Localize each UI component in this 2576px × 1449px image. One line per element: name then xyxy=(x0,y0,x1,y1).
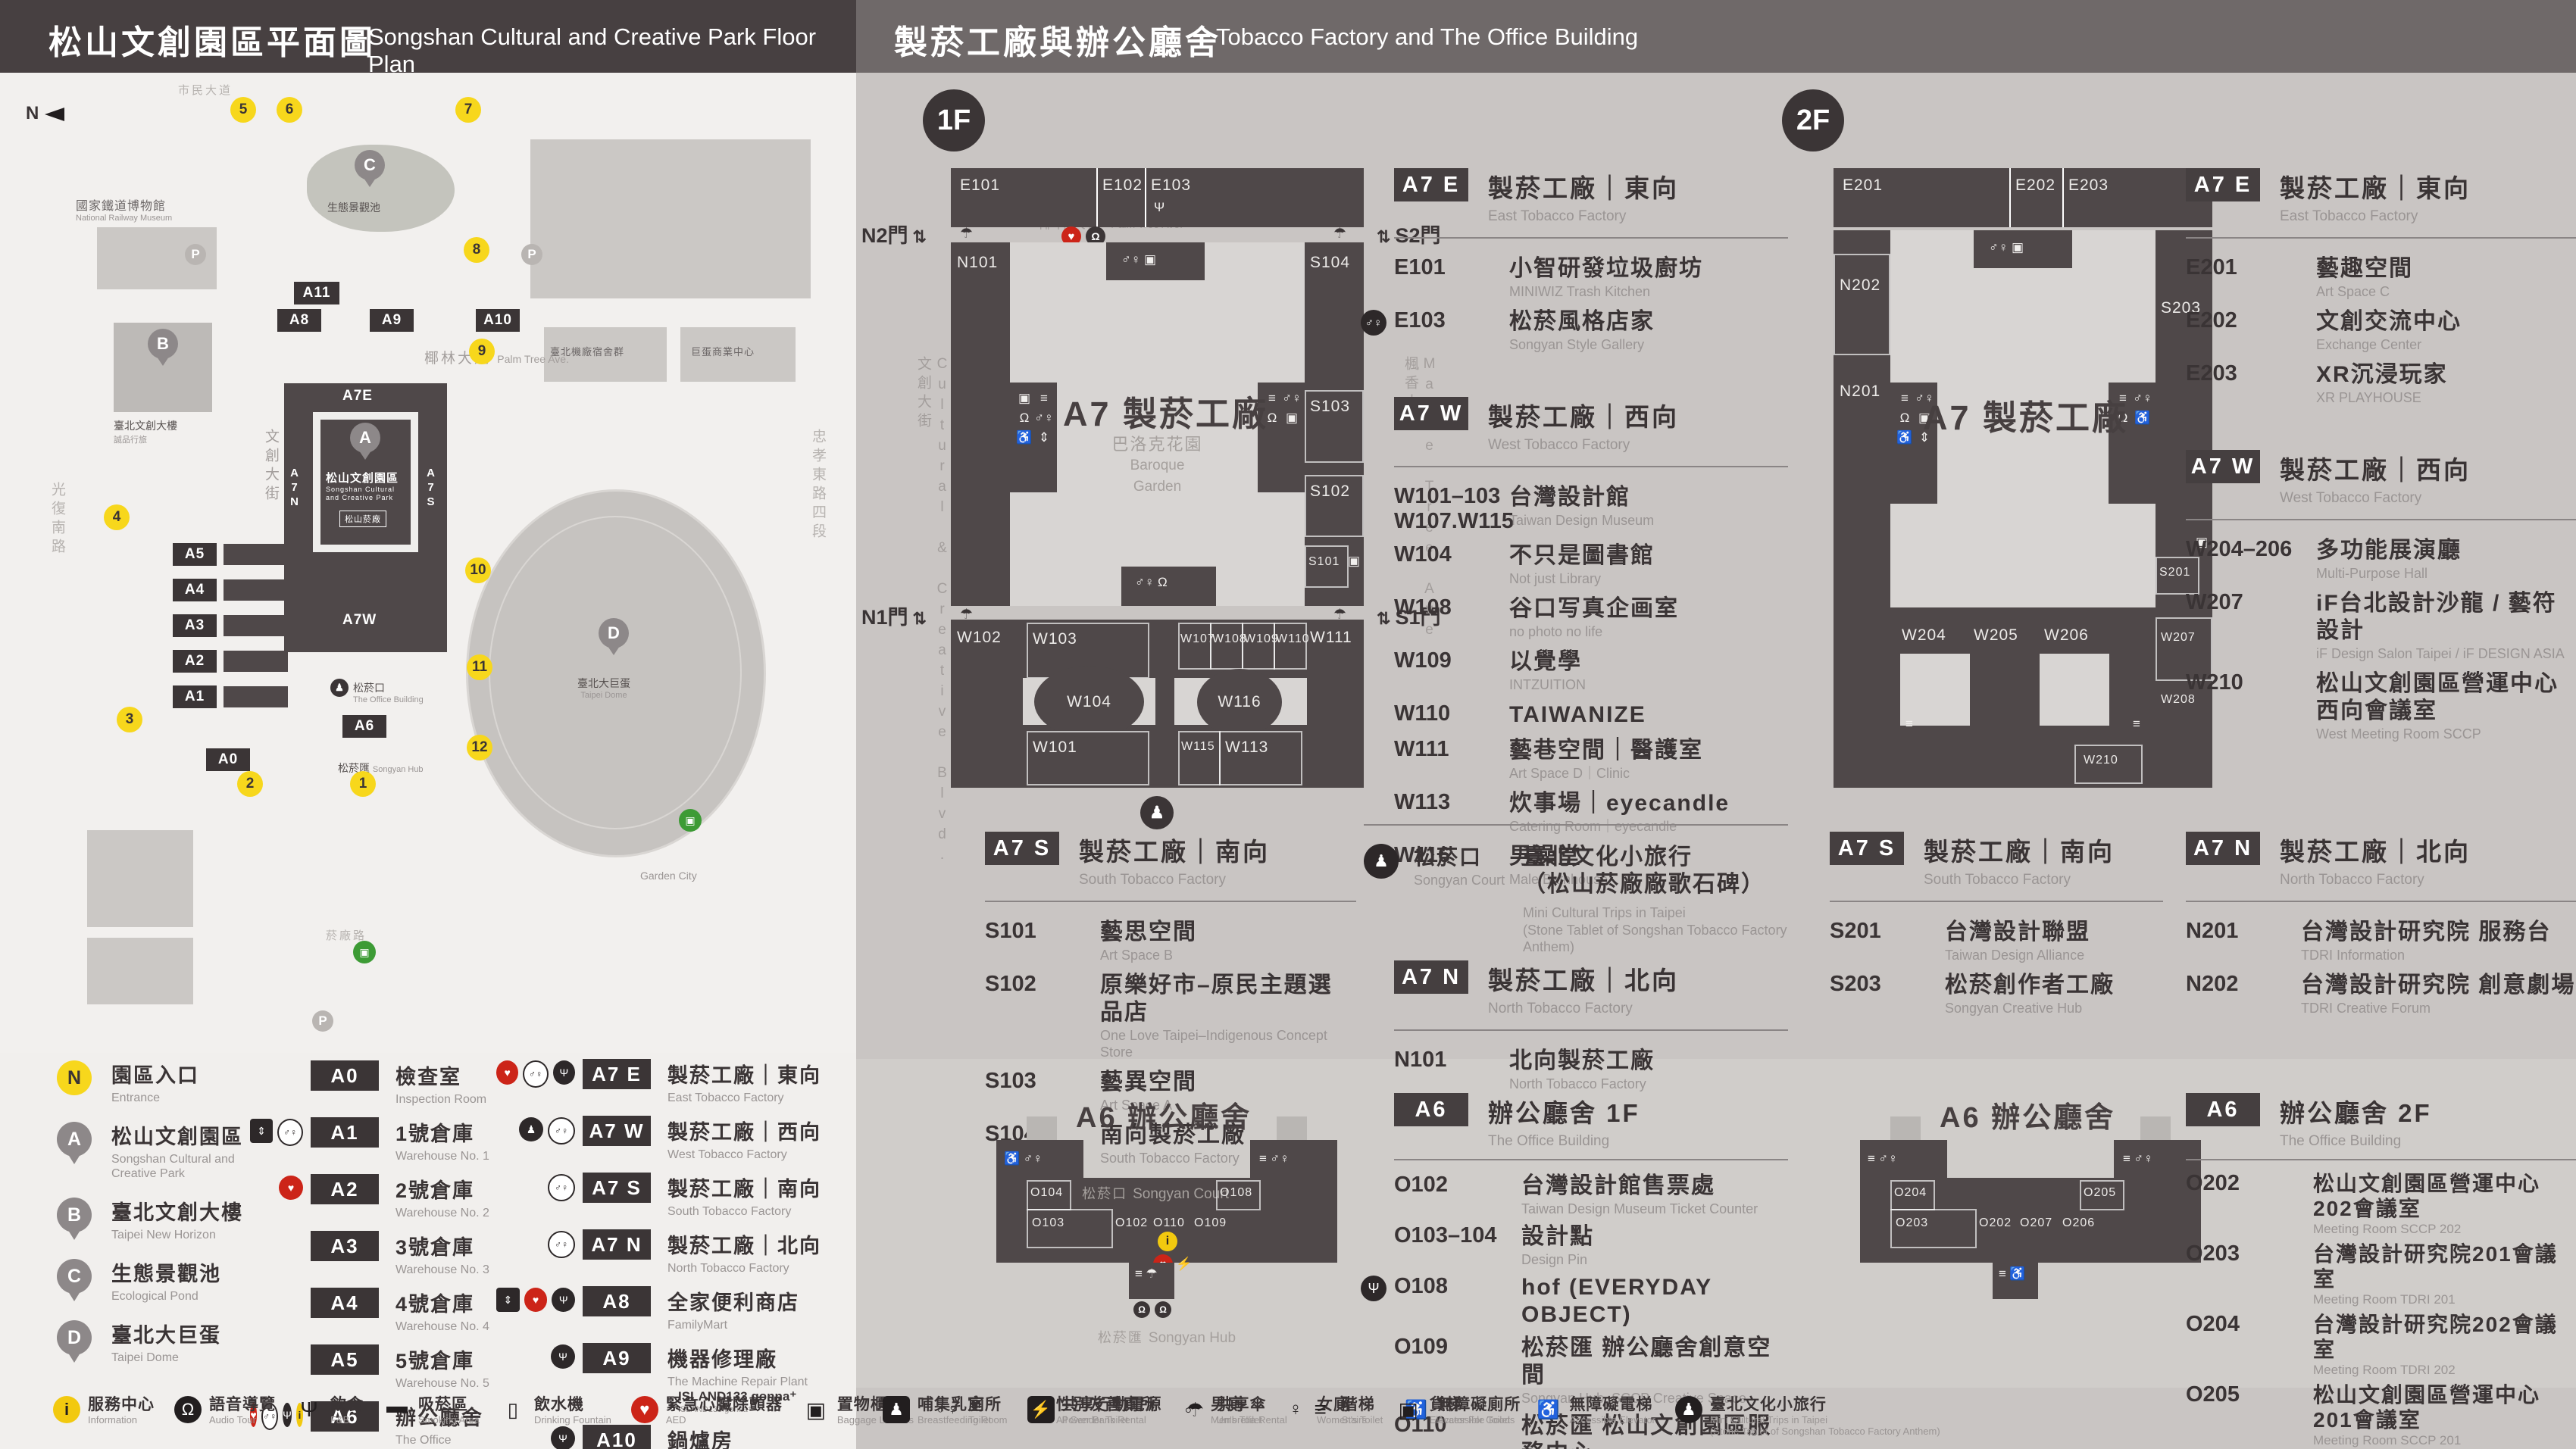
floor-badge-1f: 1F xyxy=(923,89,985,151)
right-title-en: Tobacco Factory and The Office Building xyxy=(1216,23,1638,51)
stairs-icon: ≡ xyxy=(1905,716,1913,732)
room-code: W101–103 xyxy=(1394,484,1509,509)
section-title-zh: 製菸工廠｜東向 xyxy=(1488,168,1679,205)
directory-entry: E203 XR沉浸玩家 XR PLAYHOUSE xyxy=(2186,361,2576,406)
accessible-icon: ♿ xyxy=(1896,429,1912,446)
plan1f-north-wing xyxy=(951,242,1010,606)
directory-entry: O102 台灣設計館售票處 Taiwan Design Museum Ticke… xyxy=(1394,1173,1788,1217)
room-w210: W210 xyxy=(2084,754,2118,767)
room-w116-oval: W116 xyxy=(1197,669,1282,735)
entrance-badge: 4 xyxy=(104,504,130,530)
stairs-icon: ≡ xyxy=(1868,1151,1875,1167)
blvd-label: 文創大街 xyxy=(261,429,281,504)
umbrella-icon: ☂ xyxy=(1333,225,1346,242)
plan1f-street-left: 文創大街 xyxy=(913,356,933,432)
park-map: N 國家鐵道博物館 National Railway Museum C 生態景觀… xyxy=(0,73,856,1053)
directory-entry: N202 台灣設計研究院 創意劇場TDRI Creative Forum xyxy=(2186,972,2576,1016)
amenity-item: 語音導覽 Audio Tour xyxy=(174,1396,276,1426)
directory-entry: S101 藝思空間Art Space B xyxy=(985,919,1356,963)
amenity-icon xyxy=(1182,1396,1209,1423)
west-pier: ▣≡ Ω♂♀ ♿⇕ xyxy=(1010,383,1057,492)
plan1f-title: A7 製菸工廠 xyxy=(1063,386,1268,436)
room-w109: W109 xyxy=(1244,632,1279,646)
hub-label: 松菸匯 Songyan Hub xyxy=(338,760,424,776)
accessible-icon: ♿ xyxy=(1016,429,1032,446)
directory-entry: S201 台灣設計聯盟Taiwan Design Alliance xyxy=(1830,919,2163,963)
restroom-icon: ♂♀ xyxy=(1135,574,1155,591)
dir-a6-2f: A6 辦公廳舍 2FThe Office Building O202 松山文創園… xyxy=(2186,1093,2576,1449)
stairs-icon: ≡ xyxy=(1135,1266,1143,1282)
room-w108: W108 xyxy=(1212,632,1247,646)
room-n101: N101 xyxy=(957,254,998,272)
directory-entry: O205 松山文創園區營運中心201會議室 Meeting Room SCCP … xyxy=(2186,1382,2576,1448)
map-bar-a10: A10 xyxy=(476,309,520,332)
food-icon: Ψ xyxy=(1154,199,1165,216)
a6-2f-title: A6 辦公廳舍 xyxy=(1940,1094,2115,1135)
stairs-icon: ≡ xyxy=(2133,716,2140,732)
a6-1f-title: A6 辦公廳舍 xyxy=(1076,1094,1252,1135)
lockers-icon: ▣ xyxy=(1286,410,1298,426)
map-bar-a0: A0 xyxy=(206,748,250,771)
restroom-icon: ♂♀ xyxy=(1989,239,2009,256)
entrance-badge: 8 xyxy=(464,237,489,263)
stairs-icon: ≡ xyxy=(1268,390,1276,407)
legend-factory-row: A8 全家便利商店 FamilyMart xyxy=(496,1286,852,1332)
floor-plan-poster: 松山文創園區平面圖 Songshan Cultural and Creative… xyxy=(0,0,2576,1449)
map-bar-a4: A4 xyxy=(173,579,217,601)
amenity-icon xyxy=(499,1396,527,1423)
room-name-zh: 小智研發垃圾廚坊 xyxy=(1509,255,1703,283)
room-name-en: no photo no life xyxy=(1509,623,1679,640)
legend-icon xyxy=(552,1288,575,1312)
songyan-court-icon xyxy=(1364,844,1399,879)
warehouse-slab xyxy=(224,686,288,707)
directory-entry: E201 藝趣空間 Art Space C xyxy=(2186,255,2576,300)
entrance-badge: 6 xyxy=(277,97,302,123)
room-box xyxy=(1178,623,1211,670)
legend-building-badge: A1 xyxy=(311,1117,379,1148)
amenity-item: 飲水機 Drinking Fountain xyxy=(499,1396,611,1426)
legend-icon xyxy=(551,1344,575,1369)
room-box xyxy=(1834,254,1890,355)
ring-label-a7s: A7S xyxy=(424,467,437,510)
room-code: W108 xyxy=(1394,595,1509,620)
directory-entry: S203 松菸創作者工廠Songyan Creative Hub xyxy=(1830,972,2163,1016)
map-bar-a2: A2 xyxy=(173,650,217,673)
parking-icon: P xyxy=(185,244,206,265)
room-name-en: Not just Library xyxy=(1509,570,1655,587)
a6-arm: ≡ ♂♀ xyxy=(1250,1140,1337,1182)
legend-building-row: A3 3號倉庫 Warehouse No. 3 xyxy=(250,1231,492,1277)
amenity-item: 飲食 F&B xyxy=(295,1396,364,1426)
directory-section: A7 E 製菸工廠｜東向 East Tobacco Factory E101 小… xyxy=(1394,168,1788,353)
room-name-zh: 谷口写真企画室 xyxy=(1509,595,1679,623)
legend-building-row: A1 1號倉庫 Warehouse No. 1 xyxy=(250,1117,492,1163)
directory-entry: W111 藝巷空間｜醫護室 Art Space D｜Clinic xyxy=(1394,737,1788,782)
park-name-en: Songshan Cultural and Creative Park xyxy=(326,486,405,502)
directory-entry: W210 松山文創園區營運中心 西向會議室 West Meeting Room … xyxy=(2186,670,2576,742)
umbrella-icon: ☂ xyxy=(960,225,973,242)
room-o102: O102 xyxy=(1115,1216,1148,1230)
legend-icon xyxy=(279,1176,303,1200)
room-e103: E103 xyxy=(1151,176,1191,195)
room-e101: E101 xyxy=(960,176,1000,195)
room-box xyxy=(1210,623,1243,670)
section-title-zh: 製菸工廠｜西向 xyxy=(1488,397,1679,433)
room-o103: O103 xyxy=(1032,1216,1064,1230)
legend-factory-row: A7 S 製菸工廠｜南向 South Tobacco Factory xyxy=(496,1173,852,1219)
warehouse-slab xyxy=(224,544,288,565)
legend-factories: A7 E 製菸工廠｜東向 East Tobacco Factory A7 W 製… xyxy=(496,1059,852,1449)
room-e201: E201 xyxy=(1843,176,1883,195)
pin-a: A xyxy=(350,423,380,453)
park-name-zh: 松山文創園區 xyxy=(326,470,399,486)
south-block-1 xyxy=(87,830,193,927)
factory-name: 松山菸廠 xyxy=(339,511,386,527)
legend-building-badge: A2 xyxy=(311,1174,379,1204)
directory-entry: E103 松菸風格店家 Songyan Style Gallery xyxy=(1394,308,1788,353)
songyan-court-note: 松菸口 Songyan Court 臺北文化小旅行 （松山菸廠廠歌石碑） Min… xyxy=(1364,824,1788,955)
room-o205: O205 xyxy=(2084,1186,2116,1200)
warehouse-slab xyxy=(224,579,288,601)
map-bar-a5: A5 xyxy=(173,543,217,566)
ring-label-a7w: A7W xyxy=(342,612,377,629)
accessible-icon: ♿ xyxy=(2009,1266,2025,1282)
parking-icon: P xyxy=(312,1010,333,1032)
amenity-item: 共享行動電源 Power Bank Rental xyxy=(1027,1396,1162,1426)
lockers-icon: ▣ xyxy=(2012,239,2024,256)
legend-factory-badge: A9 xyxy=(583,1343,651,1373)
room-n202: N202 xyxy=(1840,276,1880,295)
gate-n2: N2門 xyxy=(861,219,931,248)
room-o104: O104 xyxy=(1030,1186,1063,1200)
powerbank-icon: ⚡ xyxy=(1176,1256,1192,1273)
amenity-item: 吸菸區 Smoking Area xyxy=(383,1396,480,1426)
stairs-icon: ≡ xyxy=(1999,1266,2006,1282)
legend-place-badge: C xyxy=(57,1259,92,1294)
room-box xyxy=(1242,623,1275,670)
section-rule xyxy=(1394,237,1788,239)
amenity-icon xyxy=(631,1396,658,1423)
directory-entry: W104 不只是圖書館 Not just Library xyxy=(1394,542,1788,587)
directory-entry: W207 iF台北設計沙龍 / 藝符設計 iF Design Salon Tai… xyxy=(2186,590,2576,662)
amenity-item: 共享傘 Umbrella Rental xyxy=(1182,1396,1287,1426)
map-bar-a6: A6 xyxy=(342,715,386,738)
legend-icon xyxy=(548,1231,575,1258)
room-name-zh: 松菸風格店家 xyxy=(1509,308,1655,336)
room-name-en: Songyan Style Gallery xyxy=(1509,336,1655,353)
room-name-en: Taiwan Design Museum xyxy=(1509,512,1654,529)
legend-building-badge: A4 xyxy=(311,1288,379,1318)
directory-entry: O108 hof (EVERYDAY OBJECT) xyxy=(1394,1274,1788,1329)
ring-label-a7e: A7E xyxy=(342,388,373,404)
map-bar-a9: A9 xyxy=(370,309,414,332)
room-o204: O204 xyxy=(1894,1186,1927,1200)
section-rule xyxy=(1394,466,1788,467)
room-e202: E202 xyxy=(2015,176,2055,195)
legend-building-row: A4 4號倉庫 Warehouse No. 4 xyxy=(250,1288,492,1334)
toilet-niche: ♂♀ ▣ xyxy=(1106,242,1205,280)
pond-label: 生態景觀池 xyxy=(327,200,380,215)
directory-entry: W109 以覺學 INTZUITION xyxy=(1394,648,1788,693)
room-w102: W102 xyxy=(957,629,1002,647)
amenity-item: 無障礙電梯 Accessible Elevator xyxy=(1534,1396,1655,1426)
band-pocket xyxy=(2040,654,2109,726)
dome-ring xyxy=(489,516,742,829)
room-w111: W111 xyxy=(1310,629,1352,647)
section-badge: A7 W xyxy=(1394,397,1468,430)
legend-factory-row: A7 E 製菸工廠｜東向 East Tobacco Factory xyxy=(496,1059,852,1105)
amenity-item: 階梯 Stairs xyxy=(1307,1396,1375,1426)
entry-icon xyxy=(1361,310,1386,336)
room-w104: W104 xyxy=(1067,693,1111,711)
new-horizon-label: 臺北文創大樓 誠品行旅 xyxy=(114,418,177,445)
shuttle-icon: ▣ xyxy=(679,809,702,832)
directory-entry: W110 TAIWANIZE xyxy=(1394,701,1788,729)
legend-factory-row: A10 鍋爐房 Boiler Room 豆留文青 CAMA COFFEE ROA… xyxy=(496,1425,852,1449)
room-code: W113 xyxy=(1394,790,1509,815)
room-name-zh: 藝巷空間｜醫護室 xyxy=(1509,737,1703,764)
legend-factory-badge: A7 E xyxy=(583,1059,651,1089)
directory-entry: O103–104 設計點 Design Pin xyxy=(1394,1223,1788,1268)
ring-label-a7n: A7N xyxy=(288,467,301,510)
a6-arm: ≡ ♂♀ xyxy=(1860,1140,1947,1182)
civic-blvd-label: 市民大道 xyxy=(178,82,233,98)
a6-stem: ≡ ☂ xyxy=(1129,1263,1174,1299)
railway-museum-label: 國家鐵道博物館 National Railway Museum xyxy=(76,195,172,223)
plan2f-title: A7 製菸工廠 xyxy=(1923,390,2128,439)
legend-building-row: A0 檢查室 Inspection Room xyxy=(250,1060,492,1107)
stairs-icon: ≡ xyxy=(1259,1151,1267,1167)
legend-icon xyxy=(523,1060,548,1088)
left-title-en: Songshan Cultural and Creative Park Floo… xyxy=(368,23,856,78)
legend-place-badge: D xyxy=(57,1320,92,1355)
entrance-badge: 5 xyxy=(230,97,256,123)
room-name-zh: 不只是圖書館 xyxy=(1509,542,1655,570)
entrance-badge: 1 xyxy=(350,771,376,797)
restroom-icon: ♂♀ xyxy=(2133,390,2152,407)
legend-place-badge: B xyxy=(57,1198,92,1232)
a6-arm: ♿ ♂♀ xyxy=(996,1140,1083,1182)
audio-icon: Ω xyxy=(1155,1301,1171,1318)
entrance-badge: 2 xyxy=(237,771,263,797)
amenity-icon xyxy=(53,1396,80,1423)
parking-icon: P xyxy=(521,244,542,265)
directory-entry: E101 小智研發垃圾廚坊 MINIWIZ Trash Kitchen xyxy=(1394,255,1788,300)
room-box xyxy=(1178,731,1221,785)
directory-entry: O204 台灣設計研究院202會議室 Meeting Room TDRI 202 xyxy=(2186,1312,2576,1378)
left-header: 松山文創園區平面圖 Songshan Cultural and Creative… xyxy=(0,0,856,73)
amenity-item: 臺北文化小旅行 Mini Cultural Trips in Taipei (S… xyxy=(1675,1396,1940,1437)
amenity-icon xyxy=(883,1396,910,1423)
room-s104: S104 xyxy=(1310,254,1350,272)
room-w116: W116 xyxy=(1218,693,1261,711)
a6-hub-label: 松菸匯 Songyan Hub xyxy=(1091,1327,1243,1349)
a6-plan-1f: A6 辦公廳舍 ♿ ♂♀ ≡ ♂♀ O104 松菸口 Songyan Court… xyxy=(985,1083,1364,1386)
room-e203: E203 xyxy=(2068,176,2109,195)
room-code: W104 xyxy=(1394,542,1509,567)
room-code: W111 xyxy=(1394,737,1509,762)
entrance-badge: 9 xyxy=(469,339,495,364)
amenity-icon xyxy=(174,1396,202,1423)
legend-building-badge: A3 xyxy=(311,1231,379,1261)
directory-entry: W108 谷口写真企画室 no photo no life xyxy=(1394,595,1788,640)
dir-2f-north: A7 N 製菸工廠｜北向North Tobacco Factory N201 台… xyxy=(2186,832,2576,1060)
room-name-zh: 以覺學 xyxy=(1509,648,1586,676)
entry-icon xyxy=(1361,1276,1386,1301)
baroque-garden-label: 巴洛克花園 Baroque Garden xyxy=(1087,434,1227,498)
directory-entry: S102 原樂好市–原民主題選品店One Love Taipei–Indigen… xyxy=(985,972,1356,1060)
accessible-icon: ♿ xyxy=(2134,410,2150,426)
section-title-en: West Tobacco Factory xyxy=(1488,437,1679,454)
restroom-icon: ♂♀ xyxy=(1034,410,1054,426)
legend-factory-badge: A7 S xyxy=(583,1173,651,1203)
map-bar-a8: A8 xyxy=(277,309,321,332)
room-s102: S102 xyxy=(1310,482,1350,501)
section-title-en: East Tobacco Factory xyxy=(1488,208,1679,225)
room-name-en: Art Space D｜Clinic xyxy=(1509,765,1703,782)
legend-icon xyxy=(519,1117,543,1141)
restroom-icon: ♂♀ xyxy=(1282,390,1302,407)
entrance-badge: 3 xyxy=(117,707,142,732)
south-niche: ♂♀ Ω xyxy=(1121,567,1216,606)
amenity-item: 緊急心臟除顫器 AED xyxy=(631,1396,783,1426)
audio-icon: Ω xyxy=(1268,410,1277,426)
legend-building-row: A5 5號倉庫 Warehouse No. 5 xyxy=(250,1344,492,1391)
room-name-zh: 台灣設計館 xyxy=(1509,484,1654,511)
dir-2f-south: A7 S 製菸工廠｜南向South Tobacco Factory S201 台… xyxy=(1830,832,2163,1060)
dir-2f-main: A7 E 製菸工廠｜東向East Tobacco Factory E201 藝趣… xyxy=(2186,168,2576,786)
room-w206: W206 xyxy=(2044,626,2089,645)
amenity-icon xyxy=(802,1396,830,1423)
legend-icon xyxy=(548,1117,575,1145)
room-code: E101 xyxy=(1394,255,1509,280)
legend-icon xyxy=(524,1288,548,1312)
lockers-icon: ▣ xyxy=(1018,390,1030,407)
dir-1f-main: A7 E 製菸工廠｜東向 East Tobacco Factory E101 小… xyxy=(1394,168,1788,932)
room-o202: O202 xyxy=(1979,1216,2012,1230)
directory-entry: E202 文創交流中心 Exchange Center xyxy=(2186,308,2576,353)
section-badge: A7 E xyxy=(1394,168,1468,201)
room-code: W110 xyxy=(1394,701,1509,726)
restroom-icon: ♂♀ xyxy=(1878,1151,1898,1167)
entrance-badge: 12 xyxy=(467,735,492,760)
restroom-icon: ♂♀ xyxy=(2134,1151,2153,1167)
pin-c: C xyxy=(355,150,385,180)
entrance-badge: 11 xyxy=(467,654,492,680)
restroom-icon: ♂♀ xyxy=(1121,251,1141,268)
zhongxiao-rd-label: 忠孝東路四段 xyxy=(808,429,828,542)
legend-icon xyxy=(496,1060,518,1085)
room-o207: O207 xyxy=(2020,1216,2052,1230)
amenity-item: 貨梯 Elevator For Goods xyxy=(1395,1396,1515,1426)
room-w101: W101 xyxy=(1033,739,1077,757)
room-s103: S103 xyxy=(1310,398,1350,416)
room-w113: W113 xyxy=(1225,739,1268,757)
pin-b: B xyxy=(148,329,178,359)
legend-factory-badge: A7 W xyxy=(583,1116,651,1146)
room-code: E103 xyxy=(1394,308,1509,333)
divider xyxy=(2009,168,2011,227)
plan-1f: E101 E102 E103 Ψ N2門 S2門 ☂ ☂ ♥ Ω N101 S1… xyxy=(951,163,1364,829)
amenity-item: 哺集乳室 Breastfeeding Room xyxy=(883,1396,1008,1426)
room-code: W109 xyxy=(1394,648,1509,673)
room-o203: O203 xyxy=(1896,1216,1928,1230)
legend-icon xyxy=(277,1119,303,1146)
stairs-icon: ≡ xyxy=(2123,1151,2131,1167)
mall-label: 巨蛋商業中心 xyxy=(691,344,755,358)
amenity-icon xyxy=(1307,1396,1334,1423)
entrance-badge: 10 xyxy=(465,557,491,583)
amenity-bar-right: 哺集乳室 Breastfeeding Room 共享行動電源 Power Ban… xyxy=(883,1396,1960,1437)
elevator-icon: ⇕ xyxy=(1039,429,1049,446)
lockers-icon: ▣ xyxy=(1144,251,1156,268)
northeast-block xyxy=(530,139,811,298)
amenity-icon xyxy=(1675,1396,1702,1423)
room-w110: W110 xyxy=(1276,632,1310,646)
room-w204: W204 xyxy=(1902,626,1946,645)
room-o110: O110 xyxy=(1153,1216,1185,1230)
stairs-icon: ≡ xyxy=(1040,390,1048,407)
directory-entry: O202 松山文創園區營運中心202會議室 Meeting Room SCCP … xyxy=(2186,1171,2576,1237)
room-name-zh: TAIWANIZE xyxy=(1509,701,1646,729)
restroom-icon: ♂♀ xyxy=(1270,1151,1290,1167)
audio-icon: Ω xyxy=(1900,410,1910,426)
legend-icon xyxy=(548,1174,575,1201)
restroom-icon: ♂♀ xyxy=(1024,1151,1043,1167)
a6-stem: ≡ ♿ xyxy=(1993,1263,2038,1299)
band-pocket xyxy=(1900,654,1970,726)
amenity-icon xyxy=(383,1396,411,1423)
legend-factory-row: A7 N 製菸工廠｜北向 North Tobacco Factory xyxy=(496,1229,852,1276)
stairs-icon: ≡ xyxy=(1901,390,1909,407)
legend-factory-row: A7 W 製菸工廠｜西向 West Tobacco Factory xyxy=(496,1116,852,1162)
accessible-icon: ♿ xyxy=(1004,1151,1020,1167)
amenity-icon xyxy=(1534,1396,1562,1423)
legend-buildings: A0 檢查室 Inspection Room A1 1號倉庫 Warehouse… xyxy=(250,1060,492,1449)
songyan-court-icon: ♟ xyxy=(330,679,349,697)
legend-factory-badge: A10 xyxy=(583,1425,651,1449)
room-o109: O109 xyxy=(1194,1216,1227,1230)
amenity-icon xyxy=(1395,1396,1422,1423)
amenity-icon xyxy=(1027,1396,1055,1423)
map-bar-a1: A1 xyxy=(173,685,217,708)
legend-place-badge: N xyxy=(57,1060,92,1095)
legend-building-row: A2 2號倉庫 Warehouse No. 2 xyxy=(250,1174,492,1220)
room-w107: W107 xyxy=(1180,632,1215,646)
directory-entry: O203 台灣設計研究院201會議室 Meeting Room TDRI 201 xyxy=(2186,1241,2576,1307)
audio-icon: Ω xyxy=(1020,410,1030,426)
divider xyxy=(2062,168,2064,227)
guangfu-rd-label: 光復南路 xyxy=(47,482,67,557)
dome-label: 臺北大巨蛋 Taipei Dome xyxy=(577,676,630,700)
a6-court-label: 松菸口 Songyan Court xyxy=(1080,1183,1231,1205)
room-w104-oval: W104 xyxy=(1034,666,1144,738)
info-icon: i xyxy=(1158,1232,1177,1251)
warehouse-slab xyxy=(224,651,288,672)
umbrella-icon: ☂ xyxy=(1146,1266,1157,1282)
directory-entry: W204–206 多功能展演廳 Multi-Purpose Hall xyxy=(2186,537,2576,582)
left-title-zh: 松山文創園區平面圖 xyxy=(48,15,376,64)
a6-plan-2f: A6 辦公廳舍 ≡ ♂♀ ≡ ♂♀ O204 O205 O203 O202 O2… xyxy=(1849,1083,2227,1386)
map-bar-a11: A11 xyxy=(294,282,339,304)
legend-icon xyxy=(496,1288,520,1312)
directory-section: A7 W 製菸工廠｜西向 West Tobacco Factory W101–1… xyxy=(1394,397,1788,888)
court-label: 松菸口 xyxy=(353,680,385,695)
south-block-2 xyxy=(87,938,193,1004)
legend-icon xyxy=(551,1426,575,1449)
room-w115: W115 xyxy=(1181,740,1215,754)
